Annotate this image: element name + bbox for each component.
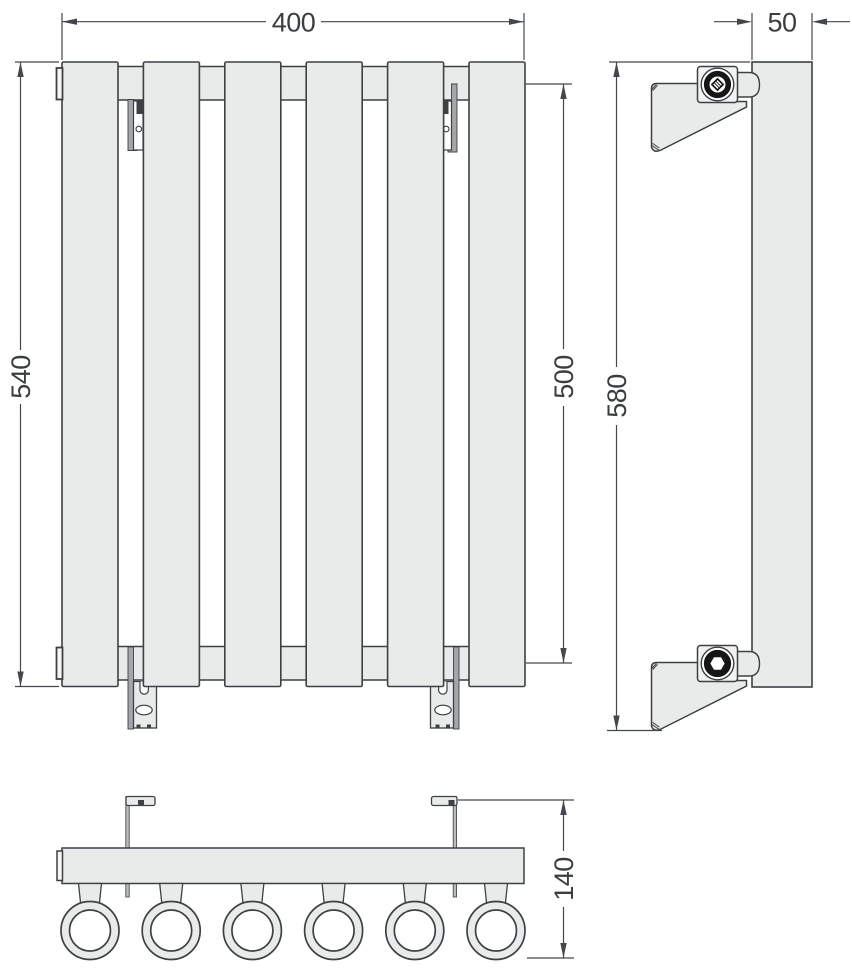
dimension-width: 400: [62, 7, 524, 60]
front-view: [57, 62, 526, 729]
radiator-technical-drawing: 400 540 500 50 580 140: [0, 0, 852, 970]
bracket-foot: [446, 725, 450, 729]
dim-overall-height-label: 580: [602, 374, 632, 418]
bracket-oval-hole: [136, 705, 152, 715]
bushing: [737, 652, 760, 677]
tube-ring-inner: [232, 910, 273, 951]
panel-group: [62, 62, 525, 687]
dim-depth-label: 50: [767, 7, 796, 37]
technical-drawing-page: 400 540 500 50 580 140: [0, 0, 852, 970]
tube-stub: [79, 884, 102, 903]
bracket-hole: [136, 126, 142, 132]
bracket-top-left: [128, 100, 143, 151]
side-panel: [752, 62, 812, 687]
bracket-foot: [137, 725, 141, 729]
bracket-oval-hole: [435, 705, 451, 715]
dim-height-label: 540: [6, 355, 36, 399]
dimension-port-spacing: 500: [526, 84, 579, 663]
radiator-panel: [62, 62, 118, 687]
hook-flag-mark: [449, 800, 455, 806]
bracket-foot: [436, 725, 440, 729]
left-tab: [57, 851, 63, 881]
tube-stub: [160, 884, 183, 903]
tube-rings: [61, 902, 525, 960]
radiator-panel: [225, 62, 281, 687]
radiator-panel: [143, 62, 199, 687]
tube-ring-inner: [313, 910, 354, 951]
tube-stubs: [79, 884, 508, 903]
side-view: [652, 62, 813, 730]
tube-ring-inner: [394, 910, 435, 951]
tube-ring-inner: [70, 910, 111, 951]
left-tab-bottom: [57, 648, 63, 680]
dimension-depth: 50: [714, 7, 850, 60]
radiator-panel: [388, 62, 444, 687]
dimension-height: 540: [6, 62, 59, 687]
tube-ring-inner: [476, 910, 517, 951]
tube-stub: [241, 884, 264, 903]
manifold-bar: [62, 848, 524, 884]
dimension-overall-height: 580: [602, 62, 750, 731]
bracket-rail: [454, 647, 460, 729]
bracket-foot: [147, 725, 151, 729]
tube-stub: [322, 884, 345, 903]
side-bracket-bottom: [652, 646, 760, 731]
bolt-hex-socket: [709, 656, 725, 670]
tube-ring-inner: [151, 910, 192, 951]
dim-overall-depth-label: 140: [549, 857, 579, 901]
bracket-rail: [128, 647, 134, 729]
side-bracket-top: [652, 67, 760, 152]
dim-width-label: 400: [272, 7, 316, 37]
hook-flag-mark: [138, 800, 144, 806]
radiator-panel: [469, 62, 525, 687]
dim-port-spacing-label: 500: [549, 355, 579, 399]
tube-stub: [403, 884, 426, 903]
bushing: [737, 73, 760, 98]
tube-stub: [485, 884, 508, 903]
left-tab-top: [57, 68, 63, 100]
radiator-panel: [306, 62, 362, 687]
top-view: [57, 797, 525, 960]
bracket-notch: [137, 101, 144, 114]
